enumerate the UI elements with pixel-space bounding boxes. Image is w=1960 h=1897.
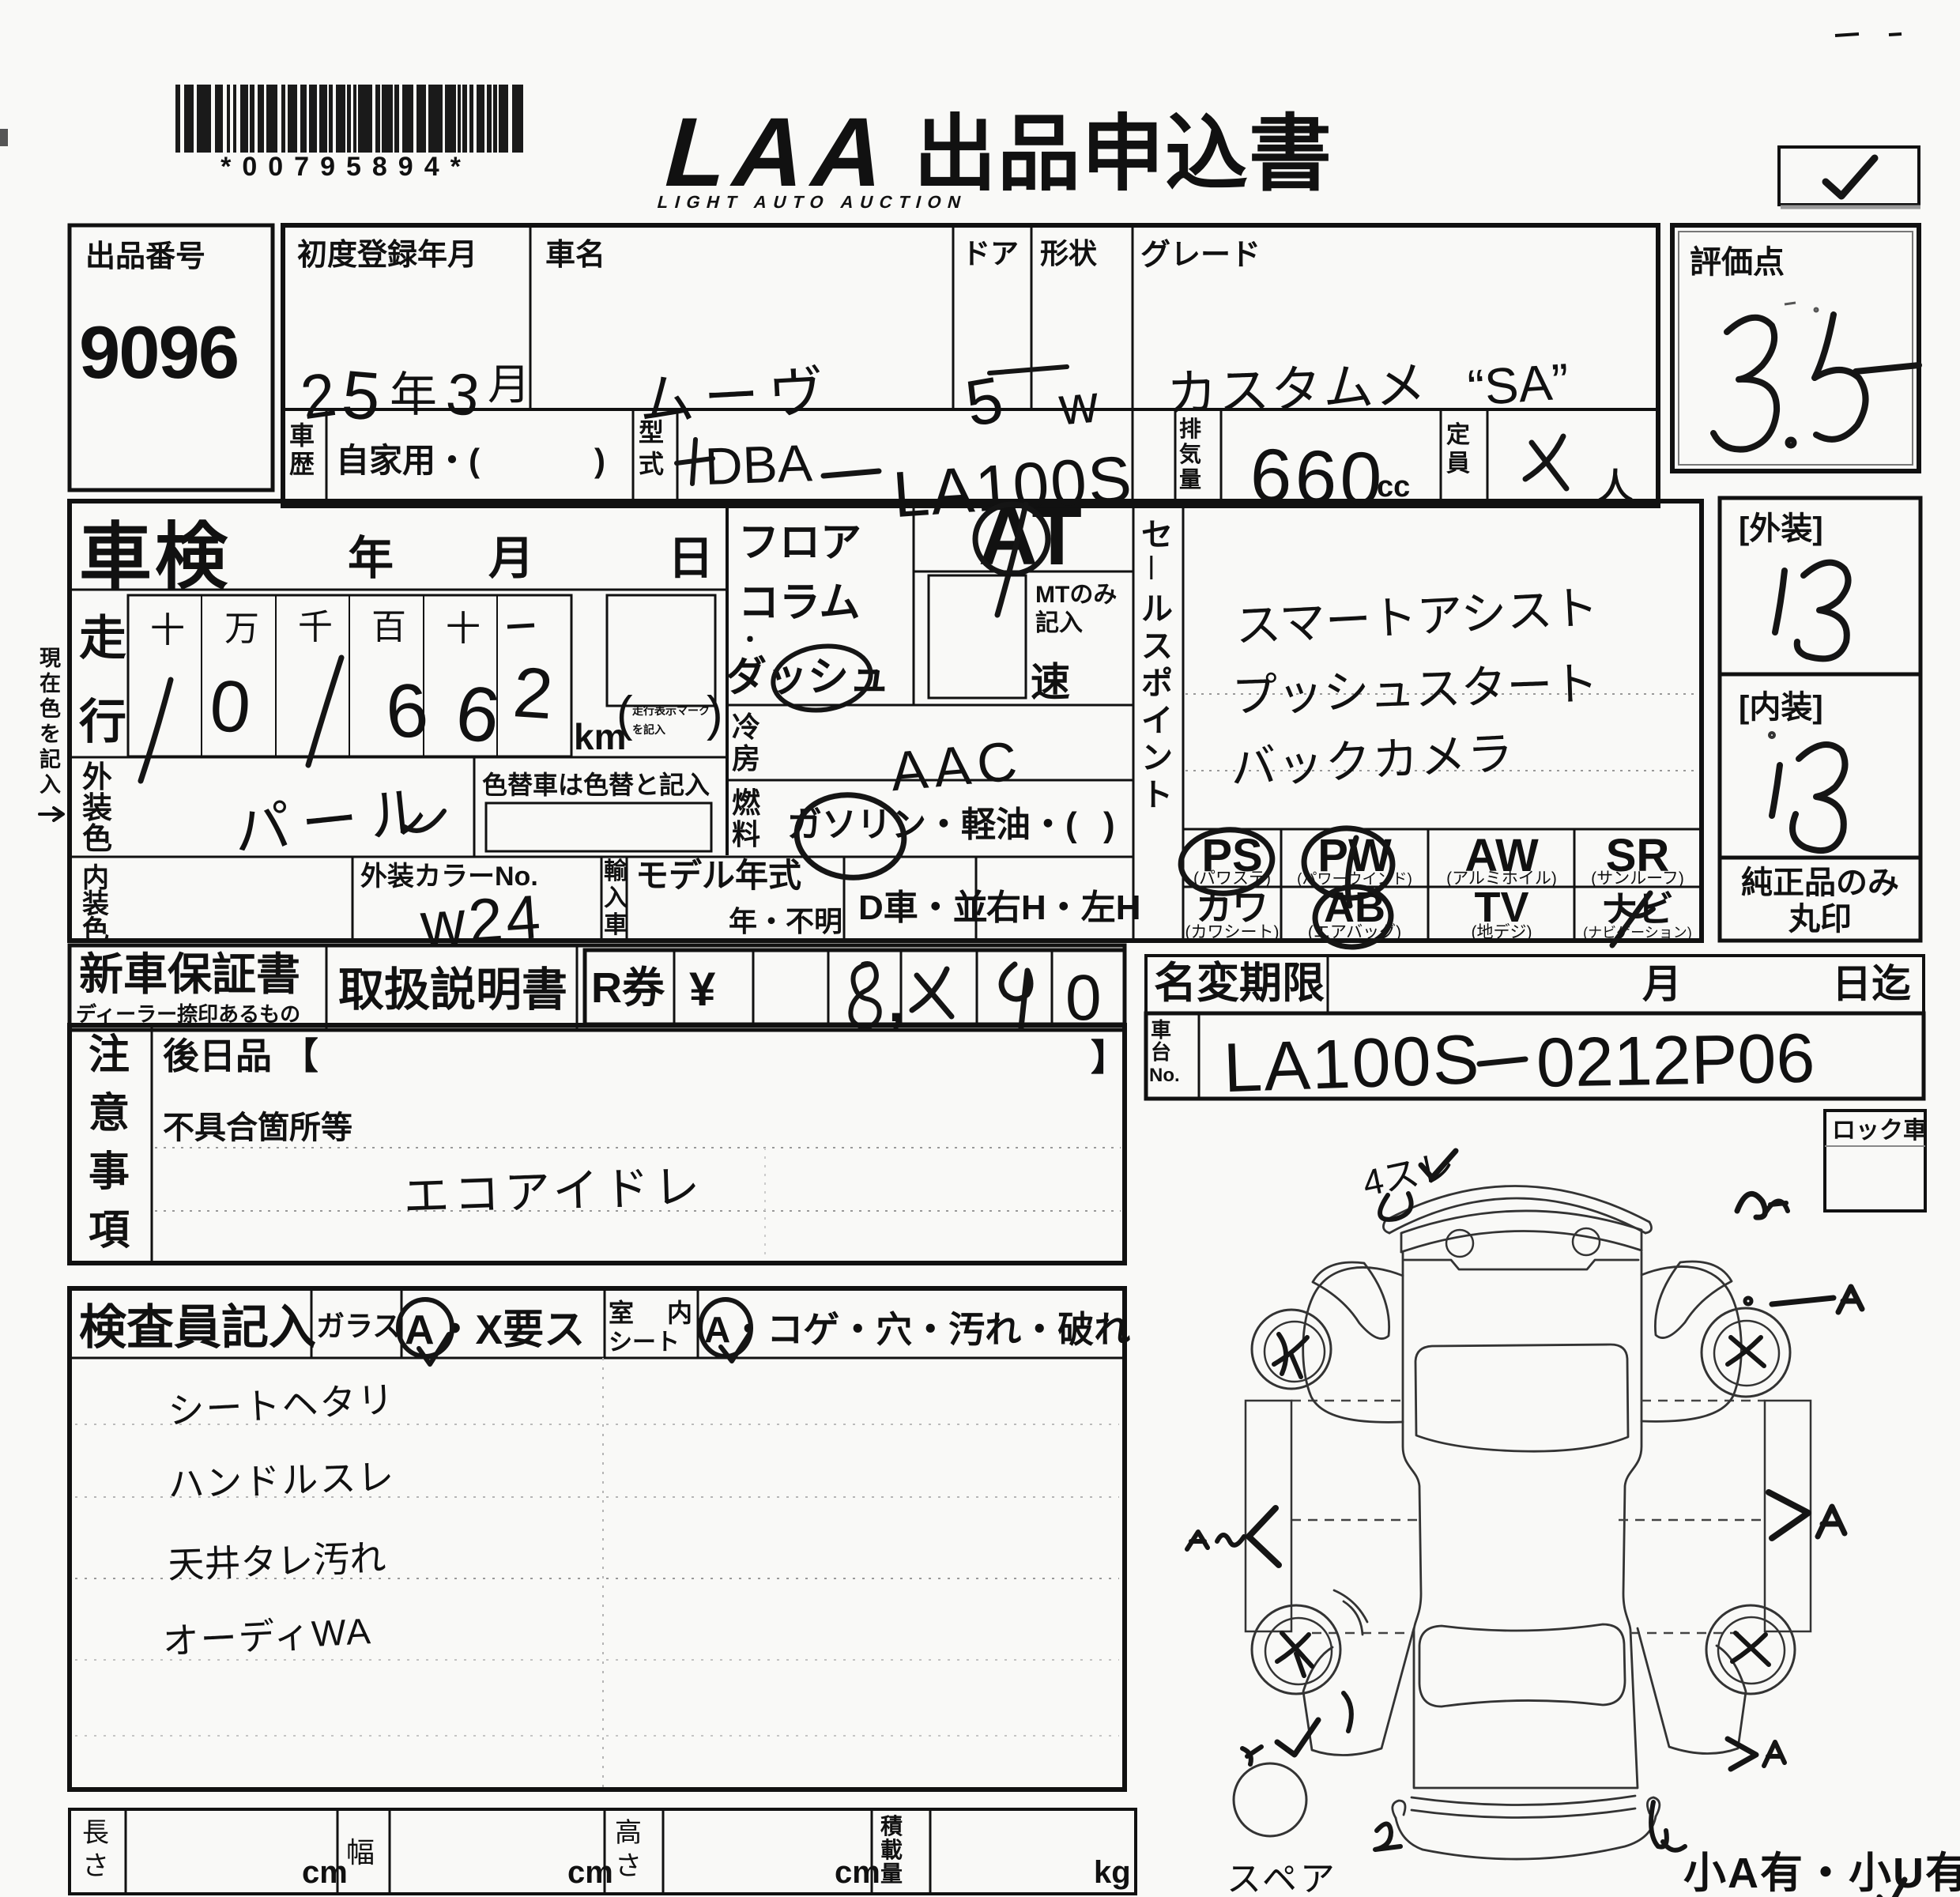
svg-text:5: 5 <box>339 356 383 436</box>
svg-text:高: 高 <box>615 1818 642 1848</box>
svg-text:車検: 車検 <box>79 517 231 598</box>
svg-text:(: ( <box>616 687 633 741</box>
svg-text:(ナビゲーション): (ナビゲーション) <box>1583 925 1692 941</box>
svg-text:不具合箇所等: 不具合箇所等 <box>163 1111 352 1145</box>
svg-text:積: 積 <box>880 1814 903 1839</box>
svg-text:年: 年 <box>348 533 394 584</box>
svg-text:660: 660 <box>1249 433 1386 522</box>
svg-text:車: 車 <box>604 912 628 938</box>
svg-text:入: 入 <box>604 885 628 911</box>
svg-text:ドア: ドア <box>962 237 1019 270</box>
svg-text:No.: No. <box>1149 1065 1180 1086</box>
svg-text:排: 排 <box>1179 417 1201 441</box>
svg-text:を: を <box>40 722 61 746</box>
svg-text:色: 色 <box>40 696 61 721</box>
svg-text:月: 月 <box>1642 962 1682 1006</box>
svg-text:月: 月 <box>488 533 534 584</box>
svg-text:cc: cc <box>1377 470 1410 503</box>
svg-text:cm: cm <box>302 1855 348 1890</box>
svg-text:(サンルーフ): (サンルーフ) <box>1591 869 1684 888</box>
svg-text:9096: 9096 <box>79 311 238 394</box>
svg-text:長: 長 <box>82 1818 109 1848</box>
svg-text:装: 装 <box>82 792 112 825</box>
svg-text:MTのみ: MTのみ <box>1035 582 1117 608</box>
svg-text:百: 百 <box>371 608 406 647</box>
svg-text:フロア: フロア <box>738 520 861 566</box>
svg-text:式: 式 <box>639 450 664 478</box>
svg-text:A・X要ス: A・X要ス <box>405 1307 585 1353</box>
svg-text:後日品 【: 後日品 【 <box>163 1035 318 1077</box>
svg-text:万: 万 <box>224 609 259 648</box>
svg-text:出品番号: 出品番号 <box>85 240 205 273</box>
svg-text:注: 注 <box>89 1032 130 1078</box>
svg-text:LAA: LAA <box>654 97 906 207</box>
svg-text:3: 3 <box>443 360 483 429</box>
svg-text:冷: 冷 <box>732 711 760 743</box>
svg-text:セ: セ <box>1141 518 1173 553</box>
svg-text:ガラス: ガラス <box>316 1310 401 1342</box>
svg-text:ス: ス <box>1141 629 1173 664</box>
svg-text:型: 型 <box>639 418 664 447</box>
svg-text:): ) <box>594 442 605 479</box>
svg-text:¥: ¥ <box>689 963 716 1016</box>
svg-text:台: 台 <box>1151 1040 1171 1064</box>
svg-text:シート: シート <box>609 1329 680 1356</box>
svg-text:さ: さ <box>82 1851 109 1881</box>
svg-text:評価点: 評価点 <box>1690 245 1785 280</box>
svg-text:ル: ル <box>1141 592 1173 627</box>
svg-text:ロック車: ロック車 <box>1832 1118 1927 1144</box>
svg-text:室: 室 <box>609 1299 634 1327</box>
svg-text:量: 量 <box>1179 467 1201 492</box>
svg-text:“SA”: “SA” <box>1466 353 1571 417</box>
svg-text:項: 項 <box>89 1208 130 1254</box>
svg-text:燃: 燃 <box>732 786 761 819</box>
svg-text:*00795894*: *00795894* <box>220 152 472 182</box>
svg-text:色替車は色替と記入: 色替車は色替と記入 <box>482 771 710 799</box>
svg-text:車: 車 <box>1151 1018 1171 1042</box>
svg-text:日: 日 <box>668 533 714 584</box>
svg-text:年・不明: 年・不明 <box>729 905 842 937</box>
svg-text:w: w <box>1056 373 1101 436</box>
svg-text:0212P06: 0212P06 <box>1536 1019 1815 1102</box>
svg-text:(カワシート): (カワシート) <box>1185 923 1280 941</box>
svg-text:色: 色 <box>82 823 112 856</box>
svg-text:LA100S: LA100S <box>1222 1020 1481 1107</box>
svg-text:月: 月 <box>488 361 530 409</box>
svg-text:丸印: 丸印 <box>1788 902 1852 937</box>
svg-text:cm: cm <box>835 1855 880 1890</box>
svg-text:出品申込書: 出品申込書 <box>914 108 1332 201</box>
svg-text:走: 走 <box>79 612 126 665</box>
svg-text:ムーヴ: ムーヴ <box>638 360 835 432</box>
svg-text:小A有・小U有: 小A有・小U有 <box>1683 1850 1960 1897</box>
svg-text:量: 量 <box>880 1861 903 1886</box>
svg-text:名変期限: 名変期限 <box>1154 960 1325 1007</box>
svg-text:ポ: ポ <box>1141 666 1173 701</box>
svg-text:定: 定 <box>1446 421 1470 448</box>
svg-text:[内装]: [内装] <box>1739 690 1823 725</box>
svg-text:幅: 幅 <box>346 1836 375 1869</box>
svg-text:記: 記 <box>40 747 61 771</box>
svg-text:カスタムメ: カスタムメ <box>1166 356 1428 422</box>
svg-text:エコアイドレ: エコアイドレ <box>402 1161 705 1223</box>
svg-text:速: 速 <box>1031 660 1070 704</box>
svg-text:R券: R券 <box>591 964 665 1012</box>
svg-text:を記入: を記入 <box>632 723 665 736</box>
svg-text:ディーラー捺印あるもの: ディーラー捺印あるもの <box>76 1002 300 1026</box>
svg-text:検査員記入: 検査員記入 <box>79 1301 316 1354</box>
svg-text:】: 】 <box>1091 1037 1127 1078</box>
svg-text:日迄: 日迄 <box>1832 962 1911 1006</box>
svg-text:さ: さ <box>615 1851 642 1881</box>
svg-text:イ: イ <box>1141 703 1173 738</box>
svg-text:車名: 車名 <box>545 239 605 272</box>
svg-text:A・コゲ・穴・汚れ・破れ: A・コゲ・穴・汚れ・破れ <box>704 1309 1130 1350</box>
svg-text:入: 入 <box>40 773 61 797</box>
svg-text:天井タレ汚れ: 天井タレ汚れ <box>168 1537 387 1586</box>
svg-text:載: 載 <box>880 1838 903 1862</box>
svg-text:w24: w24 <box>417 881 545 960</box>
svg-text:初度登録年月: 初度登録年月 <box>297 239 477 272</box>
svg-text:スペア: スペア <box>1227 1860 1338 1897</box>
svg-text:ハンドルスレ: ハンドルスレ <box>167 1456 396 1505</box>
svg-text:・: ・ <box>738 628 762 654</box>
svg-text:純正品のみ: 純正品のみ <box>1741 866 1899 900</box>
svg-text:(地デジ): (地デジ) <box>1472 923 1532 941</box>
svg-text:事: 事 <box>89 1149 130 1195</box>
svg-text:輸: 輸 <box>604 858 628 884</box>
svg-text:モデル年式: モデル年式 <box>635 857 801 894</box>
svg-text:十: 十 <box>150 611 185 650</box>
svg-text:): ) <box>1103 805 1115 844</box>
svg-text:十: 十 <box>446 609 481 648</box>
svg-text:[外装]: [外装] <box>1739 511 1823 546</box>
svg-text:自家用・(: 自家用・( <box>336 442 480 479</box>
svg-text:0: 0 <box>207 666 253 749</box>
svg-text:2: 2 <box>511 653 556 734</box>
svg-text:ン: ン <box>1141 741 1173 775</box>
svg-text:歴: 歴 <box>289 450 315 478</box>
svg-text:料: 料 <box>732 818 760 850</box>
svg-text:年: 年 <box>390 368 437 421</box>
svg-text:cm: cm <box>567 1855 613 1890</box>
svg-text:D車・並: D車・並 <box>858 888 988 927</box>
svg-text:6: 6 <box>383 668 432 755</box>
svg-text:右H・左H: 右H・左H <box>986 888 1141 927</box>
svg-text:記入: 記入 <box>1035 609 1083 636</box>
svg-text:行: 行 <box>79 696 126 749</box>
svg-text:形状: 形状 <box>1040 237 1098 270</box>
svg-text:DBA: DBA <box>704 433 813 496</box>
svg-text:取扱説明書: 取扱説明書 <box>338 964 567 1016</box>
svg-text:内: 内 <box>667 1299 692 1327</box>
svg-text:コラム: コラム <box>738 580 860 626</box>
svg-text:現: 現 <box>40 647 61 670</box>
svg-text:車: 車 <box>289 421 315 450</box>
svg-text:外: 外 <box>82 761 112 794</box>
svg-text:ガソリン・軽油・(: ガソリン・軽油・( <box>787 805 1077 844</box>
svg-text:意: 意 <box>89 1091 130 1137</box>
svg-text:在: 在 <box>40 672 61 696</box>
svg-text:新車保証書: 新車保証書 <box>79 949 300 999</box>
svg-text:グレード: グレード <box>1140 239 1261 272</box>
svg-text:カワ: カワ <box>1196 887 1268 928</box>
svg-text:kg: kg <box>1094 1855 1131 1890</box>
svg-text:AAC: AAC <box>888 730 1026 802</box>
svg-text:千: 千 <box>298 608 333 647</box>
svg-text:房: 房 <box>732 742 760 775</box>
svg-text:色: 色 <box>82 915 109 945</box>
svg-text:員: 員 <box>1446 451 1470 477</box>
svg-text:気: 気 <box>1179 442 1201 466</box>
svg-text:ト: ト <box>1141 778 1173 813</box>
